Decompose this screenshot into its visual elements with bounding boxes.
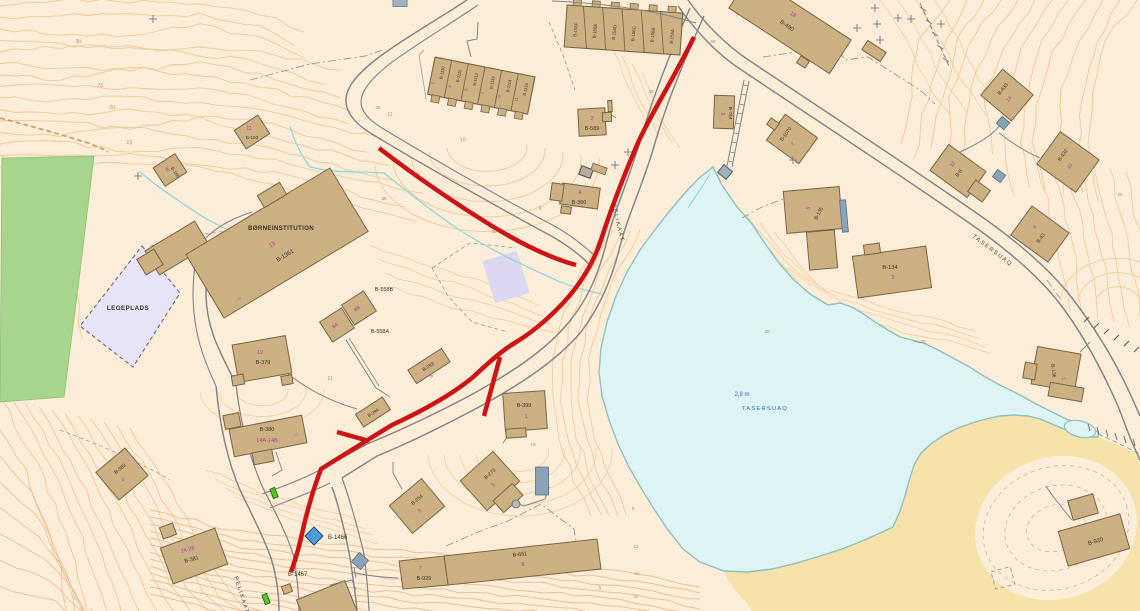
svg-text:9: 9 <box>521 562 525 568</box>
svg-text:14A-14B: 14A-14B <box>256 438 278 444</box>
svg-text:20: 20 <box>764 329 770 334</box>
svg-text:B-929: B-929 <box>417 576 432 582</box>
svg-text:10: 10 <box>459 137 466 144</box>
svg-text:B-134: B-134 <box>882 265 898 271</box>
svg-text:TASERSUAQ: TASERSUAQ <box>742 406 788 412</box>
svg-text:11: 11 <box>327 376 332 382</box>
svg-text:9: 9 <box>719 113 725 116</box>
svg-text:51: 51 <box>634 571 640 576</box>
svg-text:B-1466: B-1466 <box>328 535 348 541</box>
svg-text:30: 30 <box>381 196 387 201</box>
svg-text:15: 15 <box>126 140 133 147</box>
svg-text:B-360: B-360 <box>572 200 587 206</box>
svg-text:7: 7 <box>418 566 421 572</box>
svg-text:B-193: B-193 <box>246 135 259 140</box>
svg-text:30: 30 <box>648 89 654 94</box>
svg-text:B-380: B-380 <box>260 427 275 433</box>
svg-text:LEGEPLADS: LEGEPLADS <box>107 305 149 312</box>
svg-text:30: 30 <box>920 339 926 344</box>
svg-text:20: 20 <box>1117 192 1123 197</box>
svg-text:B-558B: B-558B <box>375 287 394 293</box>
svg-text:5: 5 <box>599 586 602 592</box>
svg-text:20: 20 <box>491 229 497 234</box>
svg-text:B-1467: B-1467 <box>288 572 308 578</box>
svg-text:10: 10 <box>293 432 299 437</box>
svg-text:20: 20 <box>109 105 116 112</box>
svg-text:1: 1 <box>524 414 527 420</box>
svg-text:11: 11 <box>246 126 251 132</box>
svg-text:2,8 m: 2,8 m <box>734 392 749 398</box>
svg-text:30: 30 <box>75 39 82 46</box>
svg-text:25: 25 <box>97 83 104 90</box>
svg-text:B-764: B-764 <box>727 107 733 120</box>
svg-text:3: 3 <box>891 275 894 281</box>
svg-text:9: 9 <box>539 206 542 212</box>
svg-text:BØRNEINSTITUTION: BØRNEINSTITUTION <box>248 225 314 232</box>
svg-text:B-558A: B-558A <box>371 329 390 335</box>
svg-text:01: 01 <box>633 594 639 599</box>
svg-text:10: 10 <box>530 442 536 447</box>
svg-text:12: 12 <box>257 350 263 356</box>
svg-text:11: 11 <box>634 544 639 549</box>
svg-text:11: 11 <box>387 112 392 118</box>
svg-text:30: 30 <box>236 296 242 301</box>
svg-text:30: 30 <box>375 105 381 110</box>
svg-text:B-379: B-379 <box>256 360 271 366</box>
svg-text:4: 4 <box>578 190 581 196</box>
svg-text:50: 50 <box>710 39 716 44</box>
svg-text:B-399: B-399 <box>517 403 532 409</box>
svg-text:2: 2 <box>590 116 593 122</box>
svg-text:B-589: B-589 <box>585 126 600 132</box>
